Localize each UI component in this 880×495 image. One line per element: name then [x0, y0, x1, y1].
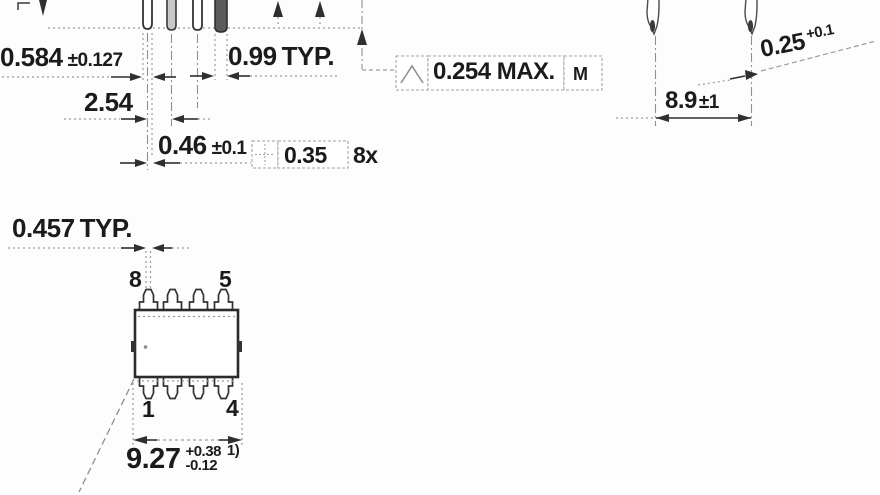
dim-value: 0.99	[228, 43, 277, 69]
dim-arrow	[656, 114, 669, 122]
dim-value: 8.9	[665, 89, 697, 113]
dim-lead-end-label: 0.99 TYP.	[228, 43, 334, 69]
dim-arrow	[172, 115, 184, 123]
dim-lead-tip-label: 0.457 TYP.	[12, 215, 132, 241]
footnote-marker: 1)	[227, 443, 239, 458]
callout-modifier: M	[573, 65, 588, 83]
pin-lead-1	[143, 0, 152, 29]
dim-tolerance-minus: -0.12	[185, 459, 220, 473]
callout-value: 0.35	[284, 144, 327, 167]
side-pin-left-edge	[650, 20, 655, 32]
dim-arrow	[153, 73, 165, 81]
top-lead	[140, 290, 158, 312]
top-lead	[215, 290, 233, 312]
pin-lead-2	[167, 0, 176, 30]
side-view	[616, 0, 876, 126]
mold-mark	[144, 345, 148, 349]
dim-tolerance-plus: +0.1	[805, 22, 835, 42]
dim-arrow	[227, 72, 239, 80]
detail-leader-diagonal	[79, 379, 134, 492]
dim-row-span-label: 8.9 ±1	[665, 89, 719, 113]
dim-tolerance: ±0.1	[212, 139, 247, 158]
bottom-lead	[164, 377, 182, 399]
callout-count: 8x	[353, 144, 378, 167]
pin-number-8: 8	[129, 268, 141, 291]
dim-lead-offset-label: 0.584 ±0.127	[0, 44, 123, 70]
dim-pitch-label: 2.54	[84, 89, 133, 115]
side-nub-left	[131, 341, 136, 352]
dim-tolerance: ±1	[699, 93, 719, 112]
dim-value: 0.457	[12, 215, 75, 241]
dim-tolerance: ±0.127	[68, 51, 123, 70]
pin-number-5: 5	[219, 268, 231, 291]
dim-qualifier: TYP.	[282, 43, 334, 69]
top-lead	[190, 290, 208, 312]
dim-arrow	[135, 115, 147, 123]
callout-value: 0.254 MAX.	[433, 60, 555, 84]
dim-arrow	[135, 159, 147, 167]
dim-qualifier: TYP.	[80, 215, 132, 241]
package-outline-drawing: 0.584 ±0.127 2.54 0.46 ±0.1 0.99 TYP. 0.…	[0, 0, 880, 495]
dim-body-length-label: 9.27 +0.38 -0.12 1)	[126, 445, 239, 474]
side-pin-right-edge	[748, 20, 753, 32]
coplanarity-value-label: 0.254 MAX.	[433, 60, 555, 84]
dim-value: 0.46	[158, 132, 207, 158]
dim-arrow	[134, 244, 146, 252]
dim-lead-width-label: 0.46 ±0.1	[158, 132, 246, 158]
dim-tolerance-stack: +0.38 -0.12	[185, 445, 220, 473]
coplanarity-modifier-label: M	[573, 65, 588, 83]
dim-arrow	[738, 114, 751, 122]
up-arrow	[357, 29, 367, 45]
bottom-lead	[190, 377, 208, 399]
dim-arrow	[130, 73, 142, 81]
dim-value: 0.584	[0, 44, 63, 70]
pin-number-4: 4	[226, 397, 238, 420]
dim-value: 9.27	[126, 445, 180, 474]
top-lead	[164, 290, 182, 312]
side-nub-right	[237, 341, 242, 352]
dim-arrow	[202, 72, 214, 80]
cropped-dimension-line	[18, 3, 30, 10]
pin-number-1: 1	[142, 398, 154, 421]
dim-arrow	[153, 159, 165, 167]
dim-value: 2.54	[84, 89, 133, 115]
position-value-label: 0.35	[284, 144, 327, 167]
up-arrow	[315, 1, 325, 17]
down-arrow	[39, 0, 47, 16]
package-body	[135, 310, 238, 377]
pin-lead-3	[193, 0, 202, 30]
pin-lead-4-sectioned	[215, 0, 227, 32]
dim-arrow	[152, 244, 164, 252]
position-count-label: 8x	[353, 144, 378, 167]
up-arrow	[273, 1, 283, 17]
